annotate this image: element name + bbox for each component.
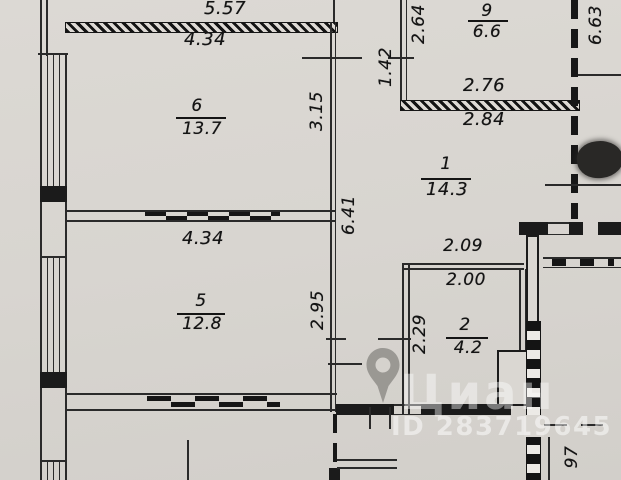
dimension-label: 6.63	[587, 0, 605, 50]
sill-blocks	[147, 396, 280, 402]
window-symbol	[65, 462, 67, 480]
window-symbol	[47, 55, 48, 187]
wall-segment	[65, 409, 337, 411]
wall-segment	[330, 22, 332, 412]
wall-segment	[329, 468, 340, 480]
wall-segment	[578, 74, 621, 76]
sill-blocks	[552, 259, 614, 266]
dimension-line	[545, 184, 621, 186]
wall-segment	[402, 263, 524, 265]
wall-segment	[336, 404, 394, 415]
watermark-listing-id: ID 283719645	[391, 413, 612, 441]
room-area: 13.7	[177, 120, 227, 138]
wall-segment	[519, 269, 521, 353]
window-symbol	[59, 55, 60, 187]
dimension-label: 2.00	[431, 271, 501, 289]
wall-column	[526, 235, 539, 323]
ink-blob	[575, 138, 621, 180]
wall-segment	[569, 222, 583, 235]
window-symbol	[59, 462, 60, 480]
window-symbol	[40, 462, 42, 480]
dimension-label: 2.64	[410, 0, 428, 49]
sill-blocks	[145, 212, 280, 216]
dimension-label: 4.34	[160, 31, 250, 49]
sill-blocks	[166, 216, 280, 220]
window-symbol	[53, 258, 54, 372]
dimension-label: 6.41	[340, 190, 358, 240]
wall-segment	[400, 0, 402, 103]
dimension-label: 5.57	[180, 0, 270, 18]
dimension-line	[328, 363, 362, 365]
wall-segment	[40, 388, 42, 462]
watermark-brand: Циан	[400, 369, 556, 417]
wall-segment	[548, 437, 550, 480]
wall-pier	[40, 186, 67, 202]
window-symbol	[40, 55, 42, 187]
dimension-label: 4.34	[158, 230, 248, 248]
wall-segment	[333, 0, 335, 22]
wall-segment	[337, 467, 397, 469]
room-area: 12.8	[177, 315, 227, 333]
window-symbol	[59, 258, 60, 372]
dimension-label: 2.09	[428, 237, 498, 255]
window-symbol	[40, 258, 42, 372]
wall-segment	[519, 222, 548, 235]
wall-segment	[46, 0, 48, 56]
room-number: 5	[176, 292, 226, 310]
window-symbol	[47, 462, 48, 480]
room-number: 1	[426, 155, 466, 173]
wall-pier	[40, 372, 67, 388]
window-symbol	[53, 55, 54, 187]
room-area: 6.6	[465, 23, 509, 41]
window-symbol	[65, 55, 67, 187]
dimension-label: 3.15	[308, 86, 326, 136]
dimension-label: 2.76	[449, 77, 519, 95]
door-opening	[548, 234, 569, 236]
window-symbol	[53, 462, 54, 480]
dimension-label: 2.84	[449, 111, 519, 129]
wall-segment	[65, 220, 336, 222]
wall-segment	[543, 267, 621, 269]
door-opening	[548, 222, 569, 224]
floor-plan: 5.57 4.34 3.15 1.42 2.64 6.63 2.76 2.84 …	[0, 0, 621, 480]
wall-segment	[406, 0, 408, 103]
room-area: 4.2	[446, 339, 490, 357]
location-pin-icon	[365, 347, 401, 405]
dimension-line	[302, 57, 362, 59]
wall-segment	[335, 22, 337, 412]
room-number: 9	[467, 2, 507, 20]
wall-segment	[337, 459, 397, 461]
room-number: 2	[445, 316, 485, 334]
wall-segment	[187, 440, 189, 480]
dimension-line	[378, 338, 411, 340]
wall-segment	[40, 0, 42, 56]
dimension-line	[326, 338, 346, 340]
window-symbol	[47, 258, 48, 372]
window-symbol	[65, 258, 67, 372]
sill-blocks	[171, 402, 280, 408]
glazing-dashed-wall	[571, 0, 578, 219]
wall-segment	[40, 202, 42, 258]
dimension-label: 2.95	[309, 285, 327, 335]
room-area: 14.3	[420, 181, 474, 199]
wall-segment	[598, 222, 621, 235]
room-number: 6	[172, 97, 222, 115]
dimension-label: 1.42	[377, 42, 395, 92]
wall-segment	[65, 388, 67, 462]
dimension-label: 2.29	[411, 309, 429, 359]
dimension-line	[369, 407, 371, 429]
